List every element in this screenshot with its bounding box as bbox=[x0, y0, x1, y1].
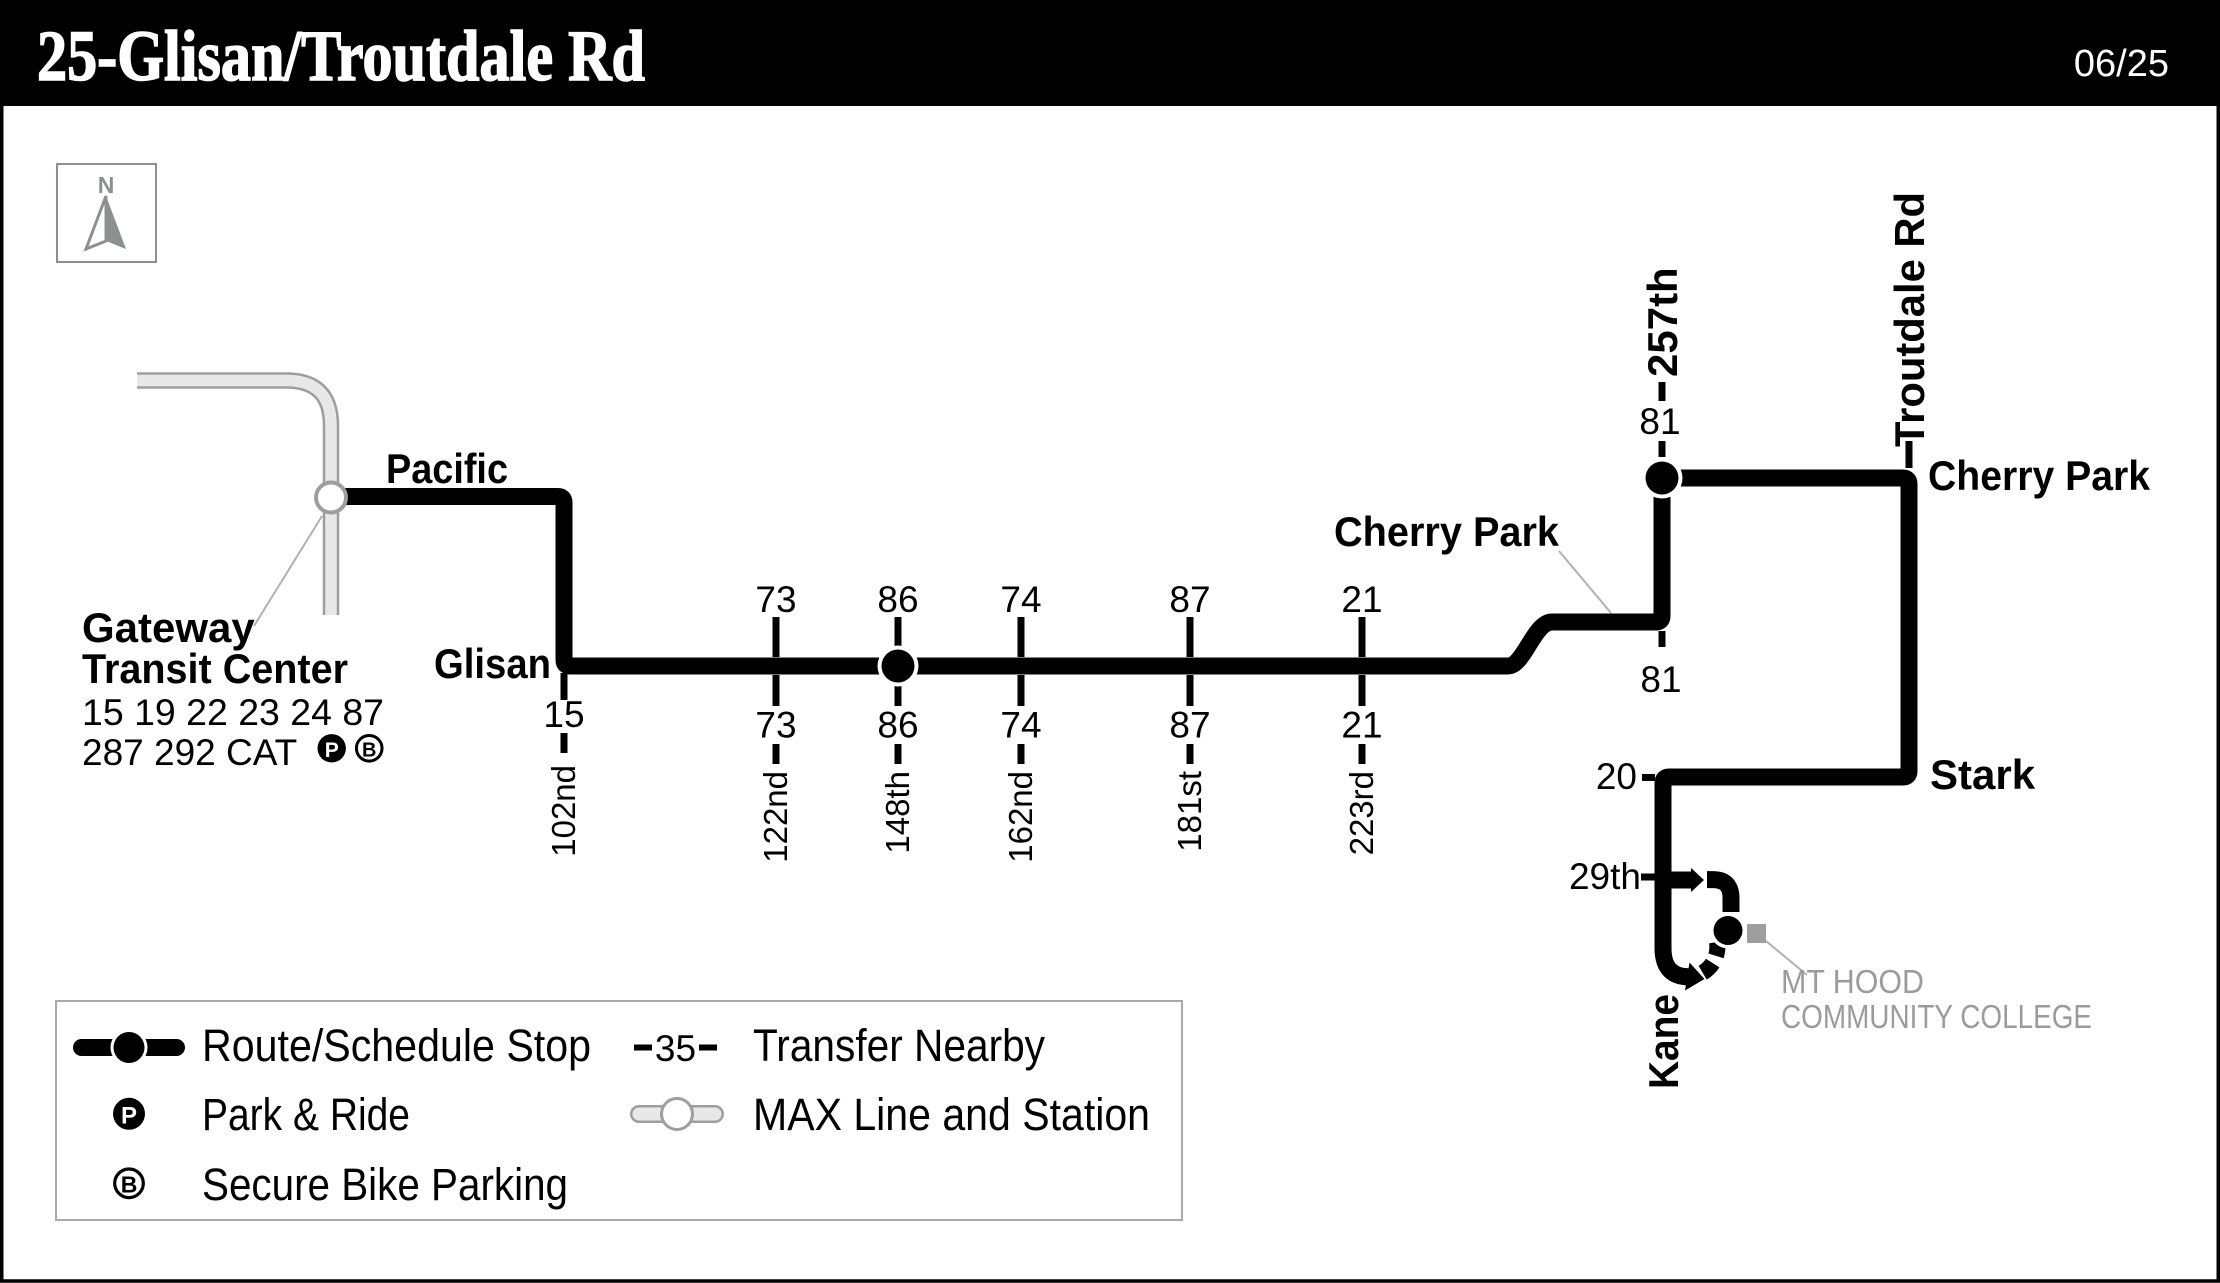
svg-text:Transit Center: Transit Center bbox=[82, 645, 348, 692]
svg-text:Glisan: Glisan bbox=[434, 640, 551, 687]
svg-text:86: 86 bbox=[877, 579, 918, 620]
svg-text:20: 20 bbox=[1596, 756, 1637, 797]
svg-text:87: 87 bbox=[1169, 579, 1210, 620]
svg-text:257th: 257th bbox=[1639, 267, 1686, 377]
svg-text:21: 21 bbox=[1341, 579, 1382, 620]
svg-text:N: N bbox=[98, 172, 115, 198]
svg-text:287 292 CAT: 287 292 CAT bbox=[82, 732, 297, 773]
svg-text:81: 81 bbox=[1639, 401, 1680, 442]
svg-text:74: 74 bbox=[1000, 579, 1041, 620]
svg-text:148th: 148th bbox=[879, 771, 916, 854]
svg-text:25-Glisan/Troutdale Rd: 25-Glisan/Troutdale Rd bbox=[37, 16, 645, 96]
svg-text:181st: 181st bbox=[1171, 771, 1208, 852]
svg-text:MT HOOD: MT HOOD bbox=[1781, 963, 1924, 1000]
svg-text:P: P bbox=[325, 739, 339, 762]
svg-text:102nd: 102nd bbox=[545, 765, 582, 857]
svg-text:06/25: 06/25 bbox=[2074, 43, 2169, 85]
svg-text:73: 73 bbox=[755, 705, 796, 746]
svg-text:COMMUNITY COLLEGE: COMMUNITY COLLEGE bbox=[1781, 998, 2092, 1035]
svg-text:35: 35 bbox=[655, 1028, 696, 1069]
svg-text:15 19 22 23 24 87: 15 19 22 23 24 87 bbox=[82, 692, 384, 733]
svg-text:73: 73 bbox=[755, 579, 796, 620]
svg-text:122nd: 122nd bbox=[757, 771, 794, 863]
svg-text:B: B bbox=[362, 740, 376, 762]
svg-text:Gateway: Gateway bbox=[82, 604, 255, 651]
svg-text:Cherry Park: Cherry Park bbox=[1334, 508, 1560, 555]
svg-text:21: 21 bbox=[1341, 705, 1382, 746]
svg-text:Secure Bike Parking: Secure Bike Parking bbox=[202, 1159, 568, 1210]
svg-text:Park & Ride: Park & Ride bbox=[202, 1089, 410, 1140]
svg-text:29th: 29th bbox=[1569, 856, 1641, 897]
svg-text:Route/Schedule Stop: Route/Schedule Stop bbox=[202, 1020, 591, 1071]
svg-text:Transfer Nearby: Transfer Nearby bbox=[753, 1020, 1045, 1071]
svg-text:81: 81 bbox=[1640, 659, 1681, 700]
svg-text:74: 74 bbox=[1000, 705, 1041, 746]
svg-text:223rd: 223rd bbox=[1343, 771, 1380, 855]
svg-text:Cherry Park: Cherry Park bbox=[1928, 452, 2151, 499]
svg-text:MAX Line and Station: MAX Line and Station bbox=[753, 1089, 1150, 1140]
svg-text:P: P bbox=[121, 1103, 137, 1130]
svg-text:87: 87 bbox=[1169, 705, 1210, 746]
svg-text:B: B bbox=[121, 1172, 138, 1198]
svg-text:Troutdale Rd: Troutdale Rd bbox=[1886, 192, 1933, 447]
svg-text:Stark: Stark bbox=[1930, 751, 2036, 798]
svg-text:86: 86 bbox=[877, 705, 918, 746]
svg-text:Pacific: Pacific bbox=[386, 445, 508, 492]
svg-text:15: 15 bbox=[543, 694, 584, 735]
svg-text:Kane: Kane bbox=[1640, 994, 1687, 1089]
svg-text:162nd: 162nd bbox=[1002, 771, 1039, 863]
